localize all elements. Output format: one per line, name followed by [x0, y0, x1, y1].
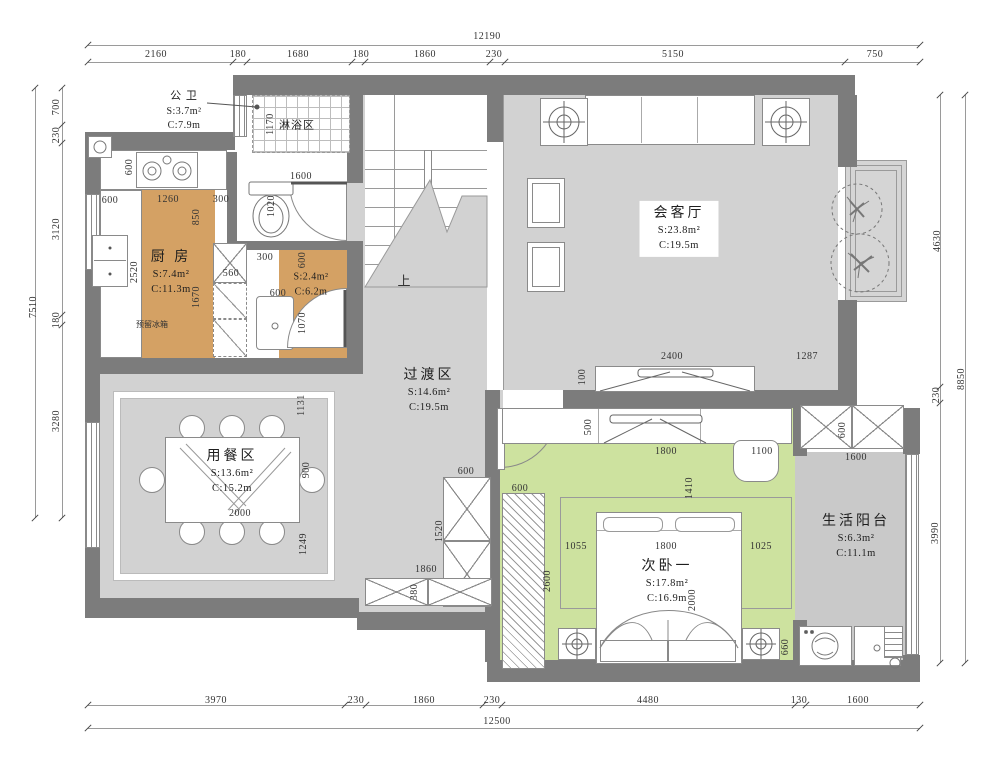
pillow-right — [675, 517, 735, 532]
stair-rail-line-1 — [394, 95, 395, 287]
dim-line-top-overall — [88, 45, 920, 46]
dim-line-left-segments — [62, 88, 63, 518]
room-label: 公 卫S:3.7m²C:7.9m — [166, 90, 201, 132]
dim-label: 7510 — [29, 296, 39, 318]
living-balcony-frame2 — [855, 170, 897, 292]
dim-label: 1680 — [287, 50, 309, 60]
wall-bottom-left — [85, 598, 359, 618]
dim-label: 700 — [52, 99, 62, 116]
kitchen-cabinet-hatch-2 — [213, 319, 247, 357]
dim-line-bottom-overall — [88, 728, 920, 729]
dim-line-right-overall — [965, 95, 966, 663]
washing-machine — [799, 626, 852, 666]
stair-handrail — [424, 150, 432, 282]
dim-label: 3120 — [52, 218, 62, 240]
dim-label: 5150 — [662, 50, 684, 60]
side-table-1-inner — [532, 183, 560, 223]
bed-foot-cushion-1 — [600, 640, 668, 662]
dim-label: 3280 — [52, 410, 62, 432]
corridor-cabinet-low-2 — [428, 578, 492, 606]
tv-cabinet-living — [595, 366, 755, 392]
window-dining-left — [85, 422, 100, 548]
wall-balcony-right-1 — [903, 408, 920, 454]
window-bath-top — [233, 95, 247, 137]
dim-label: 180 — [353, 50, 370, 60]
sofa — [585, 95, 755, 145]
dining-table — [165, 437, 300, 523]
nightstand-left — [558, 628, 596, 660]
kitchen-cabinet-x — [213, 243, 247, 283]
corridor-cabinet-tall-1 — [443, 477, 491, 541]
ceiling-light-box-right — [762, 98, 810, 146]
wall-living-right-2 — [838, 300, 857, 408]
floor-plan: 1219021601801680180186023051507507510700… — [0, 0, 1000, 769]
bedroom-cabinet-row — [502, 408, 792, 444]
dining-chair — [139, 467, 165, 493]
corner-drain-box — [88, 136, 112, 158]
dim-label: 12190 — [473, 32, 501, 42]
dim-label: 750 — [867, 50, 884, 60]
side-table-2-inner — [532, 247, 560, 287]
dim-label: 2160 — [145, 50, 167, 60]
ceiling-light-box-left — [540, 98, 588, 146]
bedroom-cabinet-divider-2 — [700, 409, 701, 443]
wall-left-4 — [85, 548, 100, 604]
wall-corridor-bottom — [357, 612, 493, 630]
dim-line-top-segments — [88, 62, 920, 63]
dim-label: 230 — [52, 127, 62, 144]
wall-left-3 — [85, 374, 100, 422]
corridor-cabinet-low-1 — [365, 578, 428, 606]
kitchen-sink-divider — [94, 260, 126, 261]
wall-bath-right-2 — [347, 241, 363, 362]
window-balcony-right — [905, 454, 919, 655]
stove — [136, 152, 198, 188]
dining-chair — [299, 467, 325, 493]
pillow-left — [603, 517, 663, 532]
room-circumference: C:7.9m — [166, 120, 201, 132]
wall-small-room-top — [237, 241, 363, 250]
shower-area — [252, 95, 350, 153]
balcony-vent-grille — [884, 626, 903, 658]
room-name: 公 卫 — [166, 90, 201, 103]
desk-chair — [733, 440, 779, 482]
wall-living-right-1 — [838, 95, 857, 167]
nightstand-right — [742, 628, 780, 660]
bed-foot-cushion-2 — [668, 640, 736, 662]
sofa-cushion-line-1 — [641, 97, 642, 143]
stair-gap — [487, 142, 503, 390]
wall-kitchen-dining — [85, 358, 363, 374]
dim-label: 1860 — [414, 50, 436, 60]
dim-label: 12500 — [483, 717, 511, 727]
living-edge-line — [503, 95, 504, 390]
dim-label: 230 — [486, 50, 503, 60]
dim-label: 4630 — [933, 230, 943, 252]
dim-line-bottom-segments — [88, 705, 920, 706]
balcony-closet-2 — [852, 405, 904, 449]
kitchen-sink — [92, 235, 128, 287]
wall-kitchen-bath — [227, 152, 237, 245]
wall-top — [233, 75, 855, 95]
balcony-closet-1 — [800, 405, 852, 449]
sofa-cushion-line-2 — [697, 97, 698, 143]
dim-label: 180 — [230, 50, 247, 60]
bedroom-cabinet-divider-1 — [598, 409, 599, 443]
dim-label: 180 — [52, 312, 62, 329]
wall-stair-pillar — [487, 95, 503, 142]
dim-line-right-segments — [940, 95, 941, 663]
wardrobe — [502, 493, 545, 669]
dim-line-left-overall — [35, 88, 36, 518]
kitchen-cabinet-hatch-1 — [213, 283, 247, 319]
room-area: S:3.7m² — [166, 106, 201, 118]
